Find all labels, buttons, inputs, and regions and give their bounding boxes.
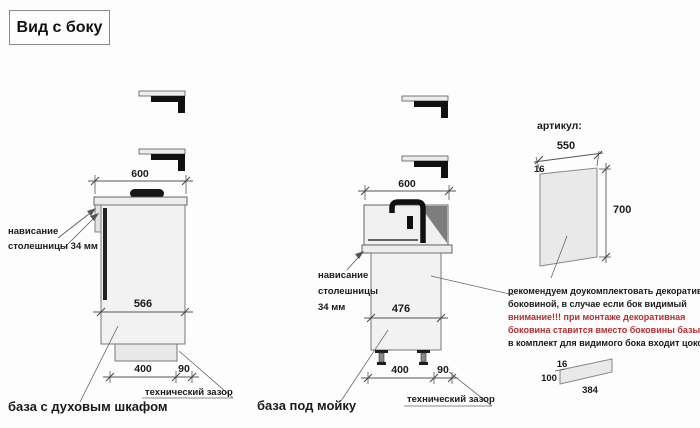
sink-body-depth-value: 476: [392, 303, 410, 315]
warning-line-1: внимание!!! при монтаже декоративная: [508, 311, 700, 324]
oven-cabinet-name: база с духовым шкафом: [8, 399, 168, 415]
oven-overhang-note: нависание столешницы 34 мм: [8, 226, 98, 253]
plinth-strip: 16 100 384: [541, 359, 612, 396]
cabinet-body: [371, 253, 441, 350]
faucet-lever: [407, 216, 413, 229]
cabinet-body: [101, 205, 185, 344]
note-line-1: рекомендуем доукомплектовать декоративно…: [508, 285, 700, 298]
oven-cabinet: 600 566 400: [58, 168, 233, 402]
panel-height-value: 700: [613, 204, 631, 216]
dimension-line: [534, 153, 603, 162]
bracket-icon: [402, 96, 448, 118]
leader-line: [80, 326, 118, 402]
note-line-3: в комплект для видимого бока входит цоко…: [508, 337, 700, 350]
panel-face: [540, 168, 597, 266]
warning-line-2: боковина ставится вместо боковины базы л…: [508, 324, 700, 337]
decor-panel-note: рекомендуем доукомплектовать декоративно…: [508, 285, 700, 350]
panel-thickness-value: 16: [534, 164, 545, 175]
side-view-drawing: Вид с боку: [0, 0, 700, 428]
sink-overhang-note-line3: 34 мм: [318, 302, 378, 314]
adjustable-foot-icon: [417, 350, 430, 365]
panel-width-value: 550: [557, 140, 575, 152]
sink-gap-note: технический зазор: [407, 394, 495, 406]
plinth-thickness-value: 16: [557, 359, 568, 370]
adjustable-foot-icon: [375, 350, 388, 365]
drawing-canvas: 600 566 400: [0, 0, 700, 428]
oven-overhang-note-line1: нависание: [8, 226, 98, 238]
countertop: [362, 245, 452, 253]
door-edge: [103, 208, 107, 300]
leader-line: [431, 276, 514, 295]
countertop: [94, 197, 187, 205]
oven-countertop-width-value: 600: [131, 168, 149, 180]
sink-rear-gap-value: 90: [437, 364, 449, 376]
bracket-icon: [139, 91, 185, 113]
note-line-2: боковиной, в случае если бок видимый: [508, 298, 700, 311]
sink-cabinet-name: база под мойку: [257, 398, 356, 414]
oven-overhang-note-line2: столешницы 34 мм: [8, 241, 98, 253]
plinth-height-value: 100: [541, 373, 557, 384]
oven-gap-note: технический зазор: [145, 387, 233, 399]
sink-countertop-width-value: 600: [398, 178, 416, 190]
sink-overhang-note: нависание столешницы 34 мм: [318, 270, 378, 314]
plinth-face: [560, 359, 612, 384]
sink-overhang-note-line1: нависание: [318, 270, 378, 282]
oven-body-depth-value: 566: [134, 298, 152, 310]
sink-plinth-depth-value: 400: [391, 364, 409, 376]
oven-rear-gap-value: 90: [178, 363, 190, 375]
plinth-length-value: 384: [582, 385, 599, 396]
sink-overhang-note-line2: столешницы: [318, 286, 378, 298]
oven-plinth-depth-value: 400: [134, 363, 152, 375]
arrowhead-icon: [355, 251, 364, 259]
leader-line: [341, 330, 388, 401]
article-heading: артикул:: [537, 120, 582, 133]
plinth: [115, 344, 177, 361]
bracket-icon: [402, 156, 448, 178]
decor-side-panel: 550 16 700: [431, 140, 631, 295]
